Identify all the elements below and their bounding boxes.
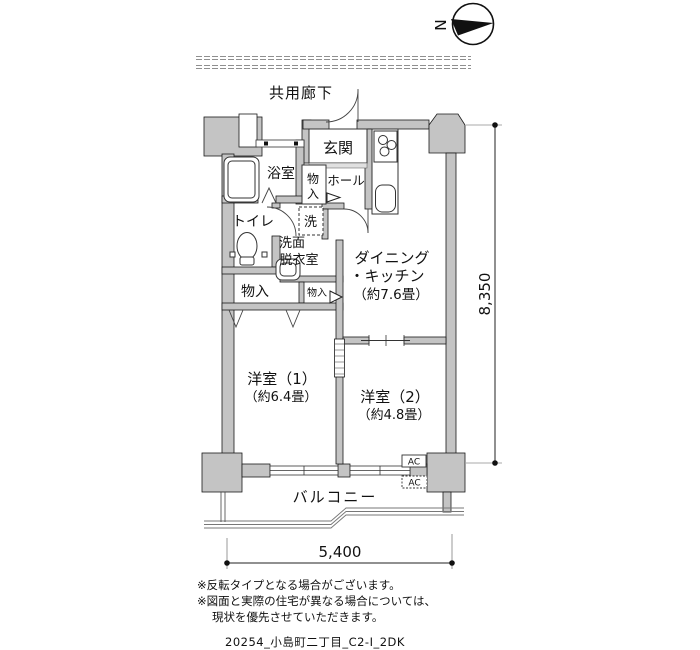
ac-indoor-label: AC — [408, 458, 420, 468]
partition-sliding-section — [335, 339, 345, 377]
dimension-vertical-group: 8,350 — [466, 122, 502, 466]
washroom-label-1: 洗面 — [279, 236, 305, 251]
dimension-vertical: 8,350 — [476, 273, 494, 316]
dimension-horizontal-group: 5,400 — [224, 534, 455, 569]
compass-north-label: N — [431, 19, 449, 31]
closet-door-swing-2 — [286, 310, 300, 327]
entrance-label: 玄関 — [323, 139, 353, 157]
balcony-divider — [221, 492, 225, 522]
footnotes: ※反転タイプとなる場合がございます。 ※図面と実際の住宅が異なる場合については、… — [197, 578, 436, 649]
bedroom2-label-2: （約4.8畳） — [358, 408, 431, 423]
dk-label-1: ダイニング — [354, 249, 429, 267]
wall-closet-divider — [299, 282, 304, 303]
pipe-shaft-notch — [239, 114, 257, 147]
wall-column-bottom-right — [427, 453, 465, 492]
toilet-label: トイレ — [232, 214, 274, 230]
wall-top-entrance-left — [303, 120, 329, 129]
wall-closet-bottom — [222, 303, 343, 310]
wall-bottom-stub-left — [242, 464, 270, 477]
bath-label: 浴室 — [267, 165, 295, 182]
wall-bottom-stub-mid — [338, 464, 350, 477]
compass-icon: N — [431, 4, 494, 45]
wall-right — [446, 153, 456, 454]
bedroom1-label-2: （約6.4畳） — [245, 390, 318, 405]
wall-dk-bedroom2-b — [404, 337, 446, 344]
bathtub-icon — [224, 157, 259, 202]
bath-folding-door — [262, 188, 276, 203]
dk-label-2: ・キッチン — [349, 267, 424, 285]
dk-label-3: （約7.6畳） — [353, 287, 428, 303]
note-line-3: 現状を優先させていただきます。 — [212, 610, 383, 624]
floor-plan-page: N 共用廊下 — [0, 0, 700, 650]
closet-small-label: 物入 — [307, 286, 327, 299]
corridor-label: 共用廊下 — [269, 84, 333, 102]
balcony-label: バルコニー — [293, 488, 378, 506]
hall-label: ホール — [327, 173, 365, 188]
note-line-2: ※図面と実際の住宅が異なる場合については、 — [197, 594, 436, 608]
bath-window — [256, 140, 304, 147]
bedroom2-label-1: 洋室（2） — [360, 388, 430, 406]
floor-plan-svg: N 共用廊下 — [0, 0, 700, 650]
balcony-window-bedroom2 — [350, 466, 410, 475]
plan-id: 20254_小島町二丁目_C2-I_2DK — [225, 635, 405, 649]
balcony-window-bedroom1 — [270, 466, 338, 475]
wall-bath-bottom-b — [276, 196, 303, 203]
hall-direction-arrow-icon — [327, 193, 340, 202]
note-line-1: ※反転タイプとなる場合がございます。 — [197, 578, 401, 592]
washer-label: 洗 — [304, 215, 317, 230]
kitchen-counter — [372, 129, 398, 214]
wall-column-top-right — [429, 114, 465, 153]
hall-storage-label-2: 入 — [307, 187, 319, 201]
washroom-door-arc — [344, 209, 368, 233]
closet-large-label: 物入 — [241, 284, 269, 300]
balcony-column-stub — [443, 492, 451, 512]
stove-icon — [374, 131, 397, 162]
corridor-lines — [196, 57, 471, 69]
hall-storage-label-1: 物 — [307, 172, 319, 186]
bedroom1-label-1: 洋室（1） — [247, 370, 317, 388]
wall-top-right — [357, 120, 429, 129]
wall-toilet-bottom — [222, 267, 280, 274]
kitchen-sink-icon — [376, 185, 396, 212]
wall-column-bottom-left — [202, 453, 242, 492]
dimension-horizontal: 5,400 — [319, 543, 362, 561]
toilet-icon — [230, 233, 267, 266]
washroom-label-2: 脱衣室 — [279, 252, 318, 268]
ac-outdoor-label: AC — [408, 479, 420, 489]
